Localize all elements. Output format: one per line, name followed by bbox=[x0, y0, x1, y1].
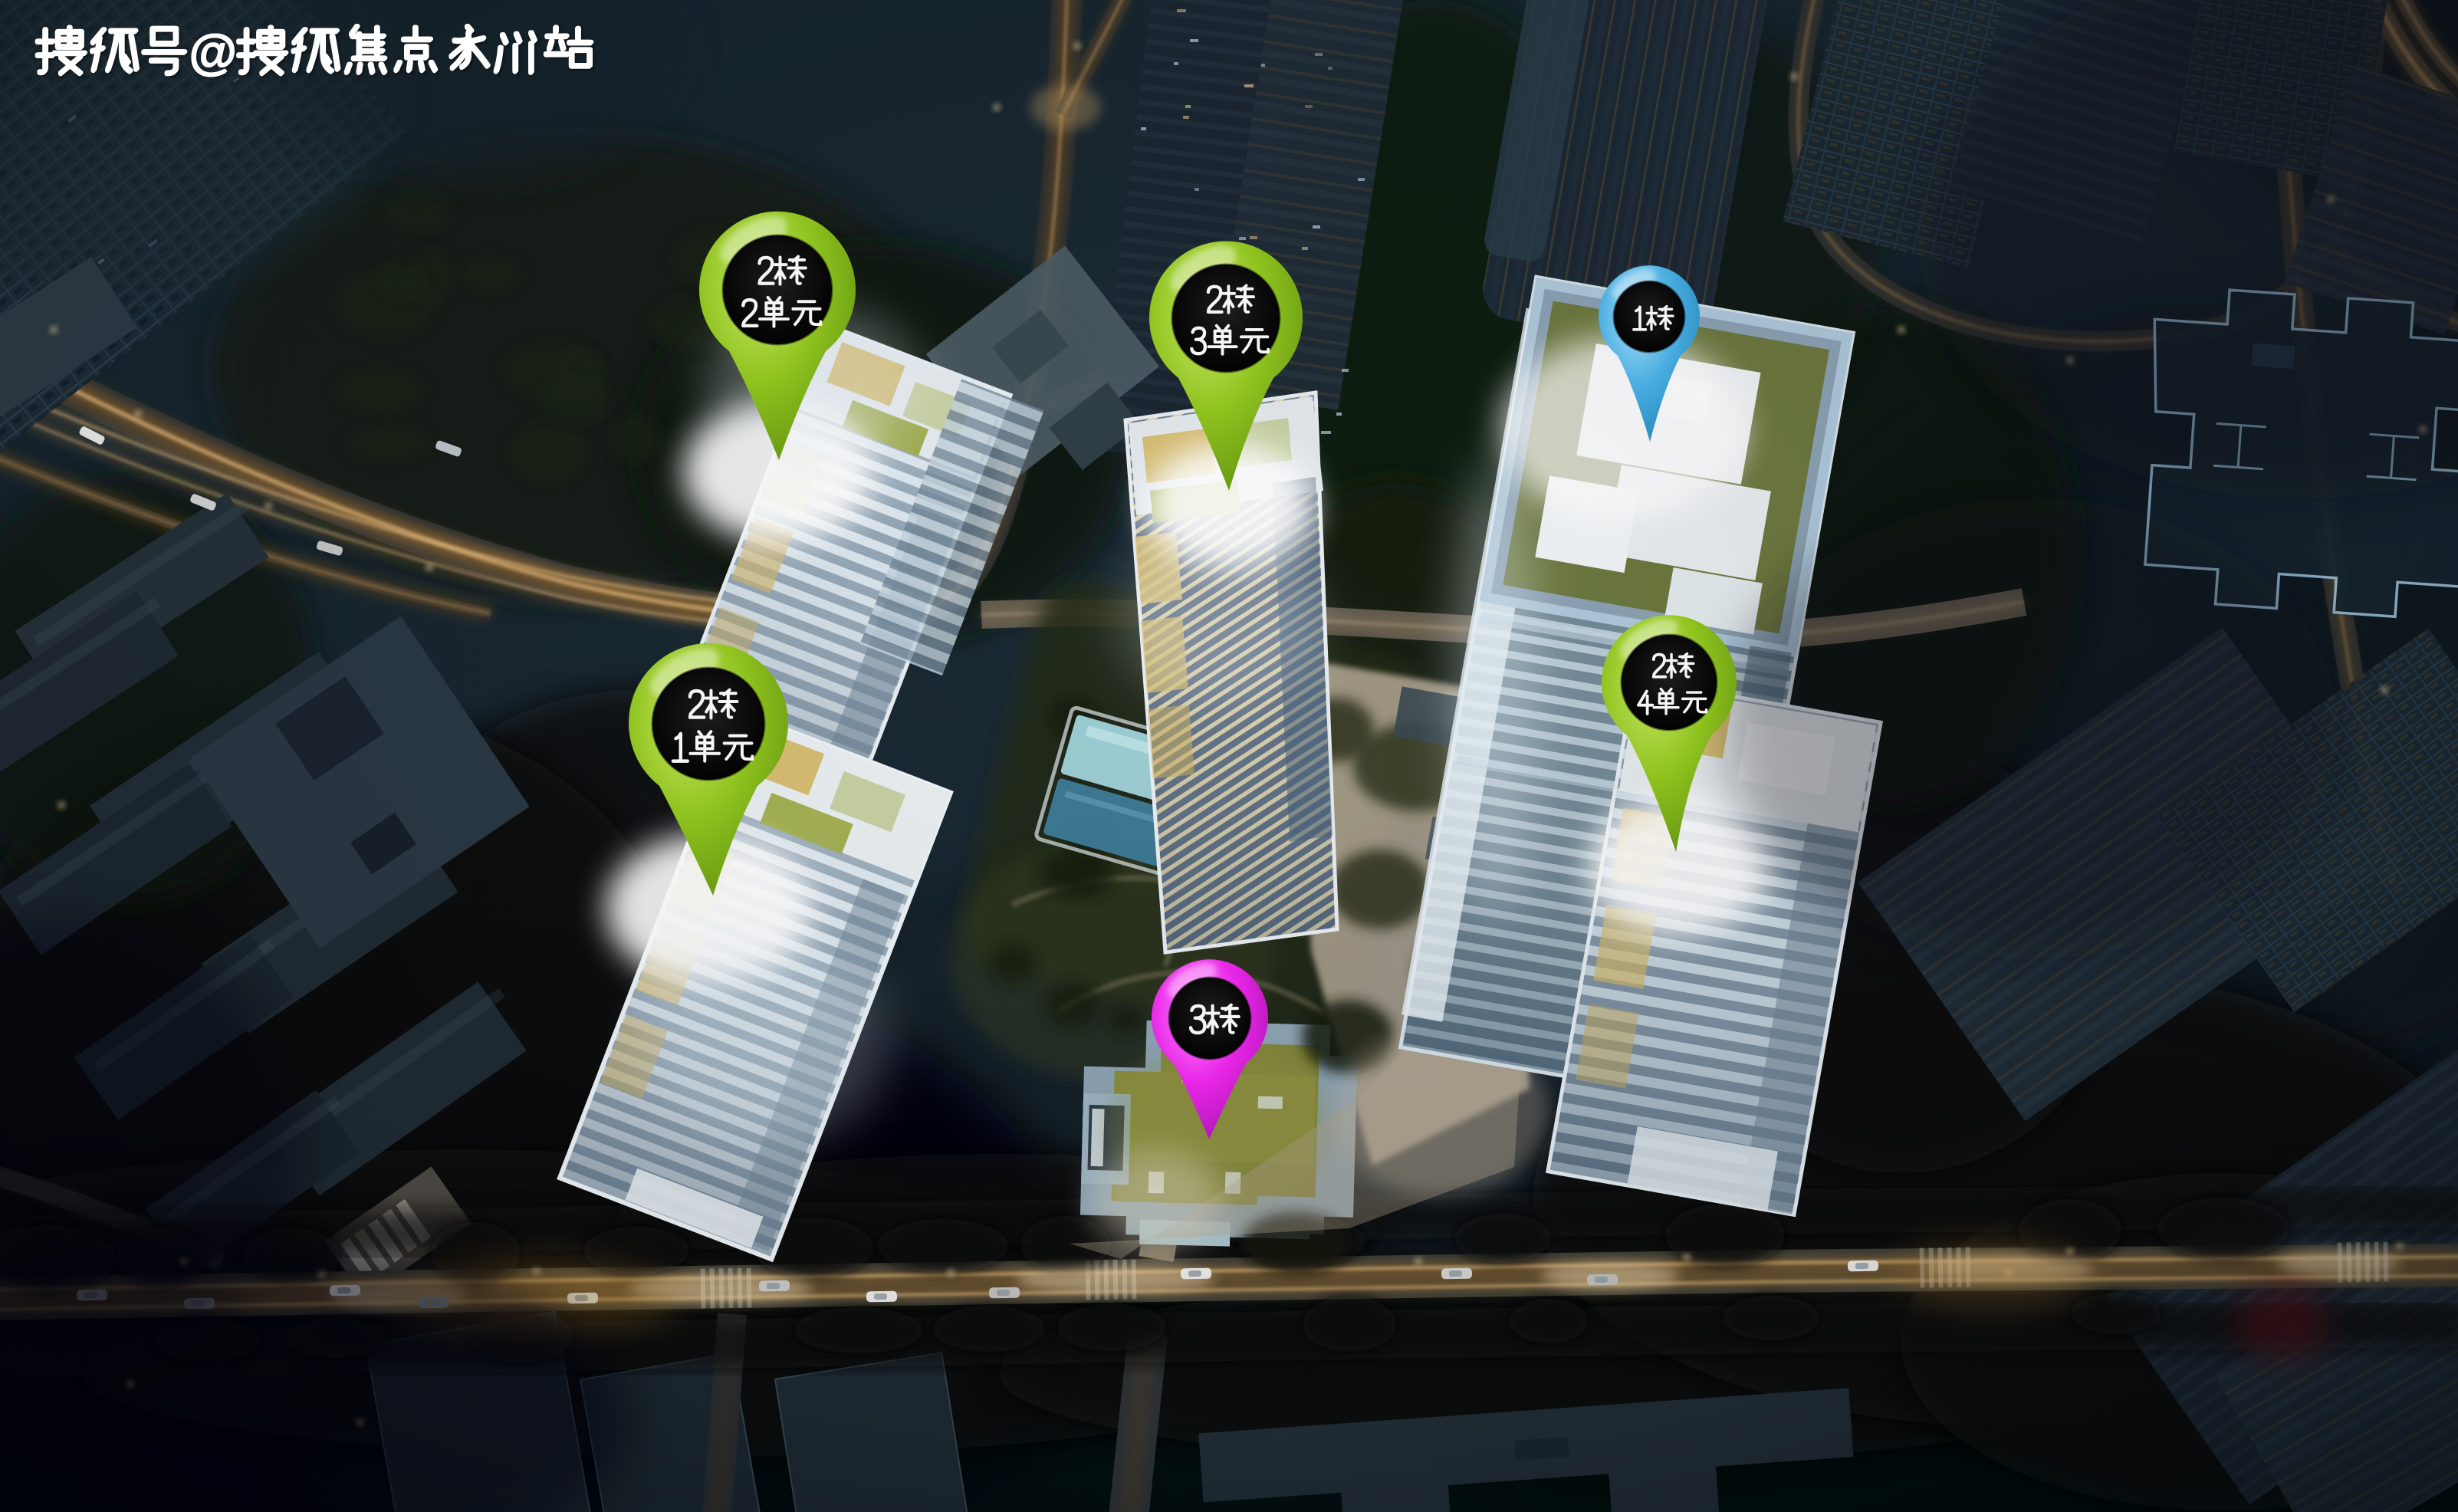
svg-text:@: @ bbox=[189, 25, 236, 81]
